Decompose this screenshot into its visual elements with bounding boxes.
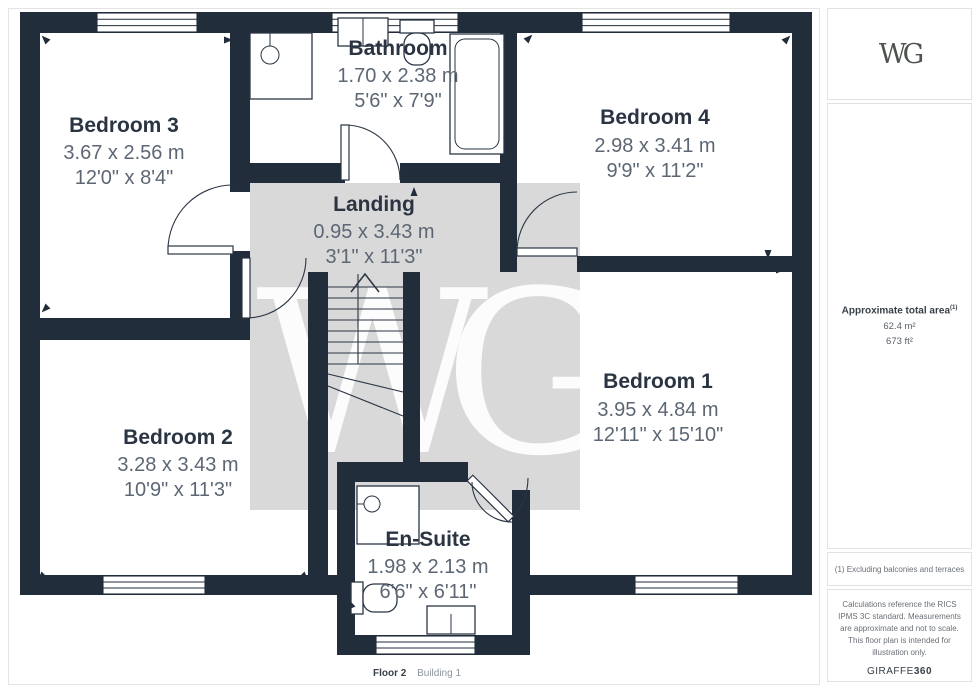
- bathtub: [450, 34, 504, 154]
- window-bedroom1: [635, 576, 738, 594]
- room-dim-imperial: 9'9" x 11'2": [606, 160, 703, 182]
- sink-ensuite: [427, 606, 475, 634]
- area-metric: 62.4 m²: [883, 321, 915, 332]
- window-ensuite: [376, 636, 475, 654]
- room-dim-metric: 0.95 x 3.43 m: [313, 221, 434, 243]
- room-dim-imperial: 3'1" x 11'3": [325, 246, 422, 268]
- room-ensuite: En-Suite 1.98 x 2.13 m 6'6" x 6'11": [367, 528, 488, 603]
- room-dim-imperial: 6'6" x 6'11": [379, 581, 476, 603]
- room-dim-imperial: 12'0" x 8'4": [75, 167, 174, 189]
- room-bedroom-3: Bedroom 3 3.67 x 2.56 m 12'0" x 8'4": [63, 114, 184, 189]
- brand-logo: WG: [879, 39, 920, 70]
- floor-label: Floor 2: [373, 668, 406, 679]
- room-bedroom-2: Bedroom 2 3.28 x 3.43 m 10'9" x 11'3": [117, 426, 238, 501]
- room-label: Bedroom 3: [69, 114, 179, 137]
- room-dim-metric: 1.70 x 2.38 m: [337, 65, 458, 87]
- window-bedroom3: [97, 13, 197, 32]
- room-dim-metric: 1.98 x 2.13 m: [367, 556, 488, 578]
- shower-bathroom: [250, 33, 312, 99]
- floor-plan-svg: WG: [0, 0, 822, 693]
- room-bedroom-1: Bedroom 1 3.95 x 4.84 m 12'11" x 15'10": [593, 370, 723, 446]
- window-bedroom4: [582, 13, 730, 32]
- sidebar: WG Approximate total area(1) 62.4 m² 673…: [822, 0, 980, 693]
- room-label: En-Suite: [385, 528, 470, 551]
- footnote-text: (1) Excluding balconies and terraces: [835, 565, 964, 574]
- room-dim-metric: 2.98 x 3.41 m: [594, 135, 715, 157]
- plan-footer: Floor 2 Building 1: [317, 668, 517, 679]
- room-bathroom: Bathroom 1.70 x 2.38 m 5'6" x 7'9": [337, 37, 458, 112]
- room-dim-imperial: 10'9" x 11'3": [124, 479, 232, 501]
- disclaimer-text: Calculations reference the RICS IPMS 3C …: [835, 599, 964, 659]
- area-label: Approximate total area(1): [842, 305, 958, 316]
- giraffe360-name: GIRAFFE: [867, 666, 914, 677]
- door-bedroom3: [168, 185, 233, 254]
- room-dim-imperial: 5'6" x 7'9": [354, 90, 441, 112]
- giraffe360-suffix: 360: [914, 666, 932, 677]
- area-panel: Approximate total area(1) 62.4 m² 673 ft…: [827, 103, 972, 549]
- logo-panel: WG: [827, 8, 972, 100]
- room-label: Bedroom 2: [123, 426, 233, 449]
- room-label: Bedroom 4: [600, 106, 710, 129]
- room-dim-imperial: 12'11" x 15'10": [593, 424, 723, 446]
- room-label: Landing: [333, 193, 415, 216]
- room-dim-metric: 3.67 x 2.56 m: [63, 142, 184, 164]
- floorplan-page: WG: [0, 0, 980, 693]
- window-bedroom2: [103, 576, 205, 594]
- room-label: Bedroom 1: [603, 370, 713, 393]
- door-bathroom: [341, 125, 400, 180]
- floor-plan: WG: [0, 0, 822, 693]
- giraffe360-logo: GIRAFFE360: [835, 666, 964, 677]
- footnote-panel: (1) Excluding balconies and terraces: [827, 552, 972, 586]
- disclaimer-panel: Calculations reference the RICS IPMS 3C …: [827, 589, 972, 682]
- building-label: Building 1: [417, 668, 461, 679]
- room-dim-metric: 3.95 x 4.84 m: [597, 399, 718, 421]
- area-footnote-marker: (1): [950, 305, 957, 311]
- area-label-text: Approximate total area: [842, 306, 950, 317]
- room-dim-metric: 3.28 x 3.43 m: [117, 454, 238, 476]
- area-imperial: 673 ft²: [886, 336, 913, 347]
- room-label: Bathroom: [348, 37, 447, 60]
- room-bedroom-4: Bedroom 4 2.98 x 3.41 m 9'9" x 11'2": [594, 106, 715, 182]
